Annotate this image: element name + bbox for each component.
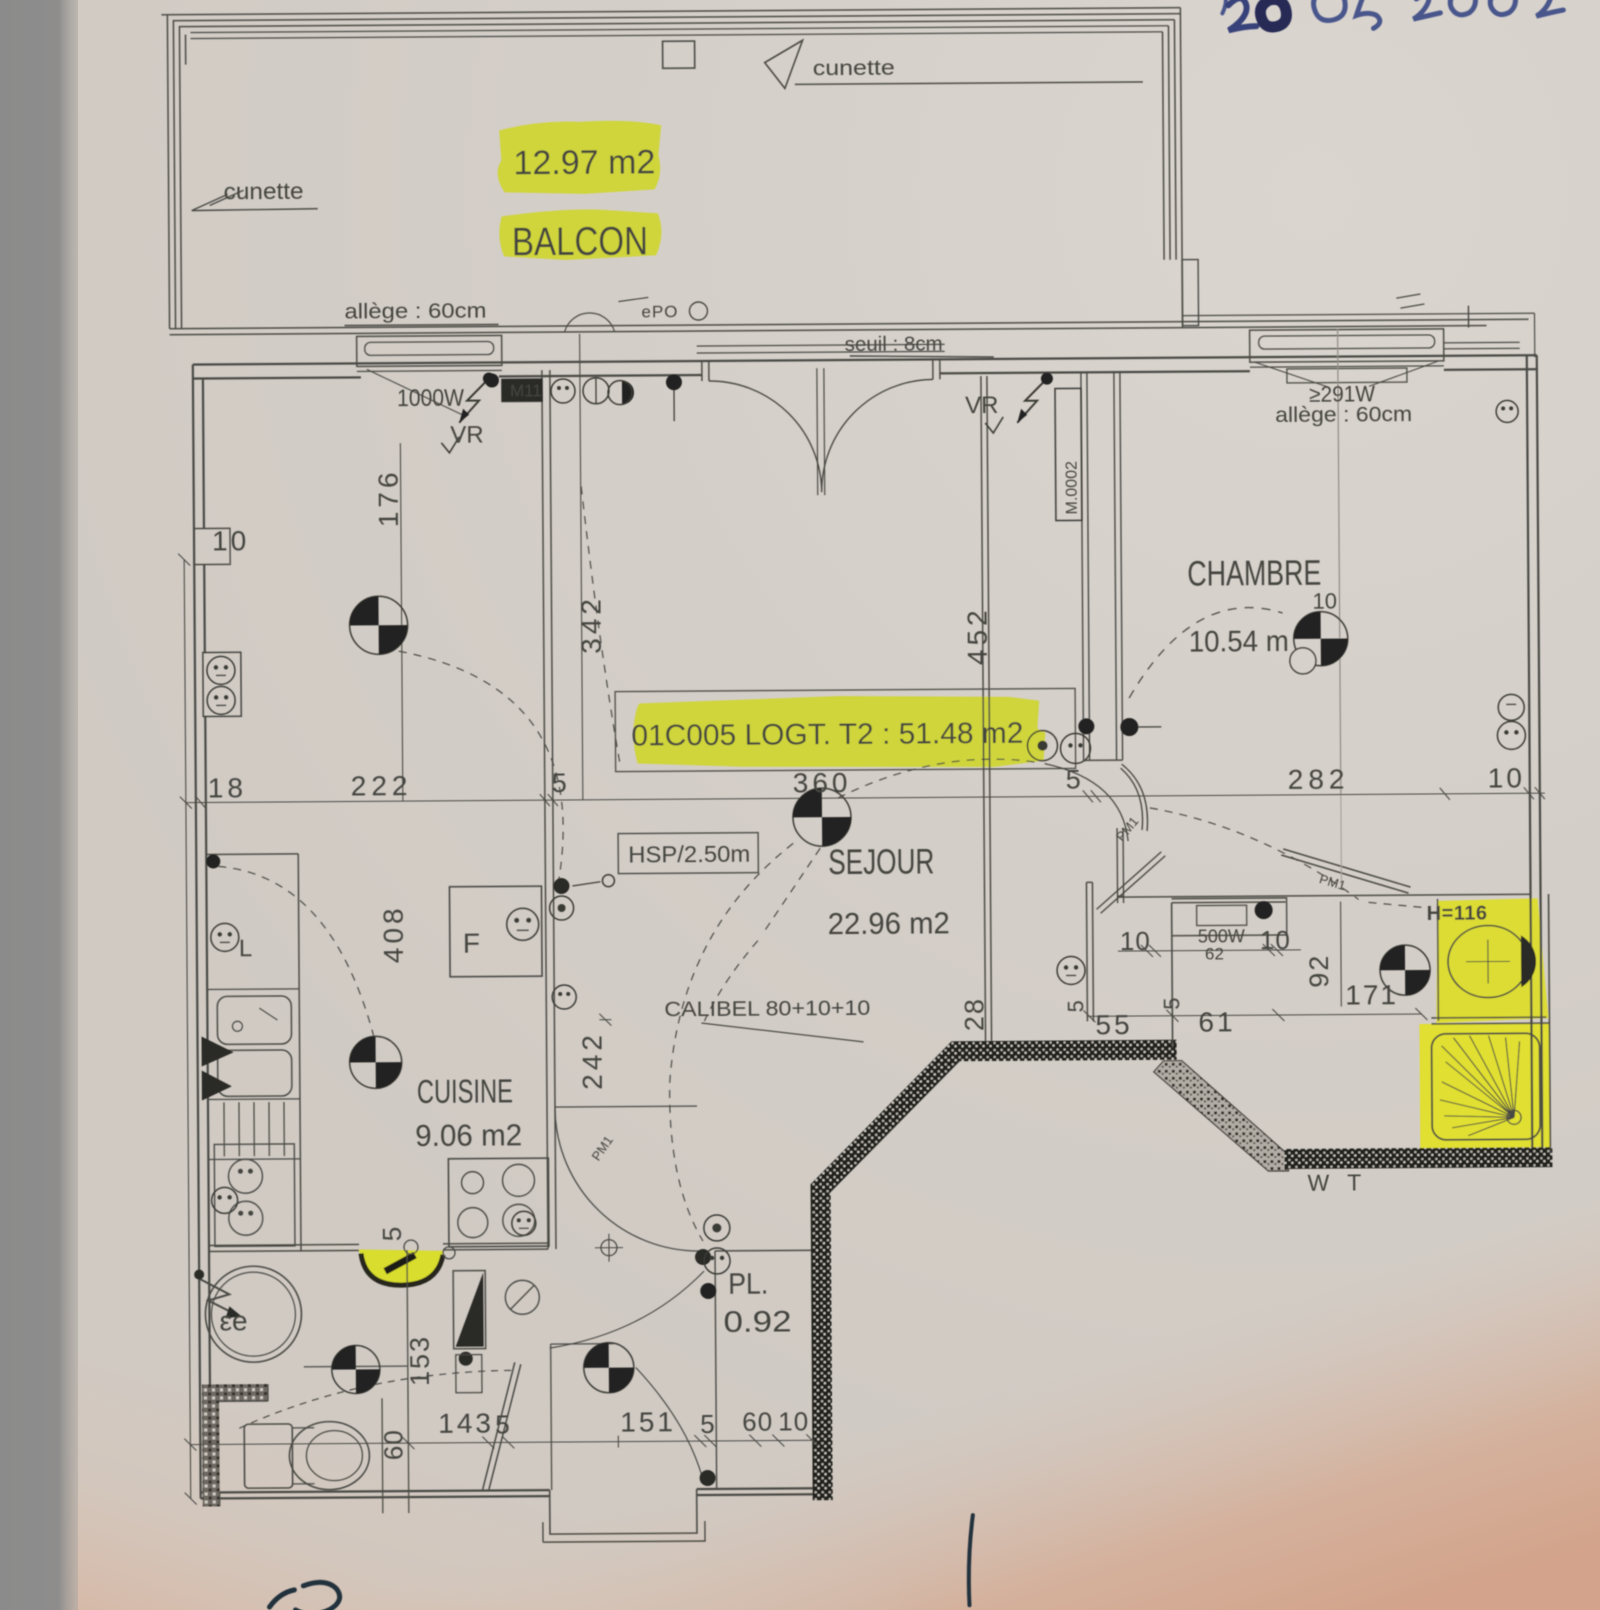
svg-text:10: 10 <box>778 1406 809 1436</box>
svg-text:CALIBEL 80+10+10: CALIBEL 80+10+10 <box>664 997 870 1021</box>
svg-text:60: 60 <box>742 1407 773 1437</box>
svg-text:5: 5 <box>700 1409 715 1439</box>
svg-text:5: 5 <box>495 1409 510 1439</box>
svg-text:282: 282 <box>1288 764 1350 795</box>
svg-text:ePO: ePO <box>641 302 678 321</box>
svg-text:L: L <box>239 935 253 962</box>
svg-text:10: 10 <box>1312 589 1337 614</box>
svg-text:VR: VR <box>965 392 999 419</box>
svg-text:W T: W T <box>1307 1169 1367 1195</box>
svg-text:28: 28 <box>959 997 989 1031</box>
svg-text:408: 408 <box>378 904 409 963</box>
svg-text:360: 360 <box>793 767 852 798</box>
svg-text:5: 5 <box>1159 997 1184 1009</box>
svg-text:452: 452 <box>962 606 993 665</box>
svg-text:5: 5 <box>552 768 567 798</box>
svg-text:342: 342 <box>575 595 606 654</box>
svg-text:10: 10 <box>1488 762 1525 793</box>
svg-text:H=116: H=116 <box>1427 903 1488 925</box>
svg-text:10: 10 <box>1260 925 1291 955</box>
svg-text:10.54 m: 10.54 m <box>1189 625 1289 659</box>
svg-text:10: 10 <box>1120 926 1151 956</box>
svg-text:242: 242 <box>576 1031 607 1090</box>
svg-text:CHAMBRE: CHAMBRE <box>1187 554 1321 594</box>
svg-text:1000W: 1000W <box>397 385 464 412</box>
svg-text:BALCON: BALCON <box>512 219 648 264</box>
svg-text:PL.: PL. <box>728 1268 768 1301</box>
svg-text:εe: εe <box>219 1305 247 1336</box>
svg-text:151: 151 <box>620 1406 676 1437</box>
svg-text:18: 18 <box>208 772 247 803</box>
svg-text:61: 61 <box>1198 1006 1235 1037</box>
svg-text:cunette: cunette <box>813 57 895 81</box>
svg-text:153: 153 <box>405 1335 435 1386</box>
svg-text:HSP/2.50m: HSP/2.50m <box>628 841 750 868</box>
svg-text:allège : 60cm: allège : 60cm <box>1275 403 1412 427</box>
svg-text:60: 60 <box>378 1429 408 1460</box>
svg-text:22.96 m2: 22.96 m2 <box>828 905 950 941</box>
svg-text:F: F <box>463 928 480 959</box>
svg-text:VR: VR <box>450 422 484 449</box>
svg-text:222: 222 <box>351 770 413 801</box>
svg-text:176: 176 <box>373 468 404 527</box>
svg-text:0.92: 0.92 <box>723 1305 791 1338</box>
svg-text:5: 5 <box>377 1227 407 1242</box>
svg-text:171: 171 <box>1345 979 1398 1010</box>
svg-text:allège : 60cm: allège : 60cm <box>344 300 486 324</box>
svg-text:cunette: cunette <box>224 178 304 205</box>
svg-text:5: 5 <box>1063 1000 1088 1012</box>
svg-text:01C005 LOGT. T2 : 51.48 m2: 01C005 LOGT. T2 : 51.48 m2 <box>631 717 1023 753</box>
svg-text:5: 5 <box>1066 764 1081 794</box>
svg-text:9.06 m2: 9.06 m2 <box>415 1117 522 1153</box>
svg-text:CUISINE: CUISINE <box>417 1072 513 1110</box>
svg-text:M11: M11 <box>510 381 542 400</box>
svg-text:10: 10 <box>212 525 249 556</box>
svg-text:M.0002: M.0002 <box>1063 461 1080 515</box>
svg-text:62: 62 <box>1205 944 1224 963</box>
svg-text:seuil : 8cm: seuil : 8cm <box>845 333 943 356</box>
svg-text:12.97 m2: 12.97 m2 <box>513 143 655 182</box>
svg-text:55: 55 <box>1095 1009 1132 1040</box>
svg-text:92: 92 <box>1304 954 1334 988</box>
svg-text:SEJOUR: SEJOUR <box>828 842 934 882</box>
svg-text:143: 143 <box>438 1408 494 1439</box>
